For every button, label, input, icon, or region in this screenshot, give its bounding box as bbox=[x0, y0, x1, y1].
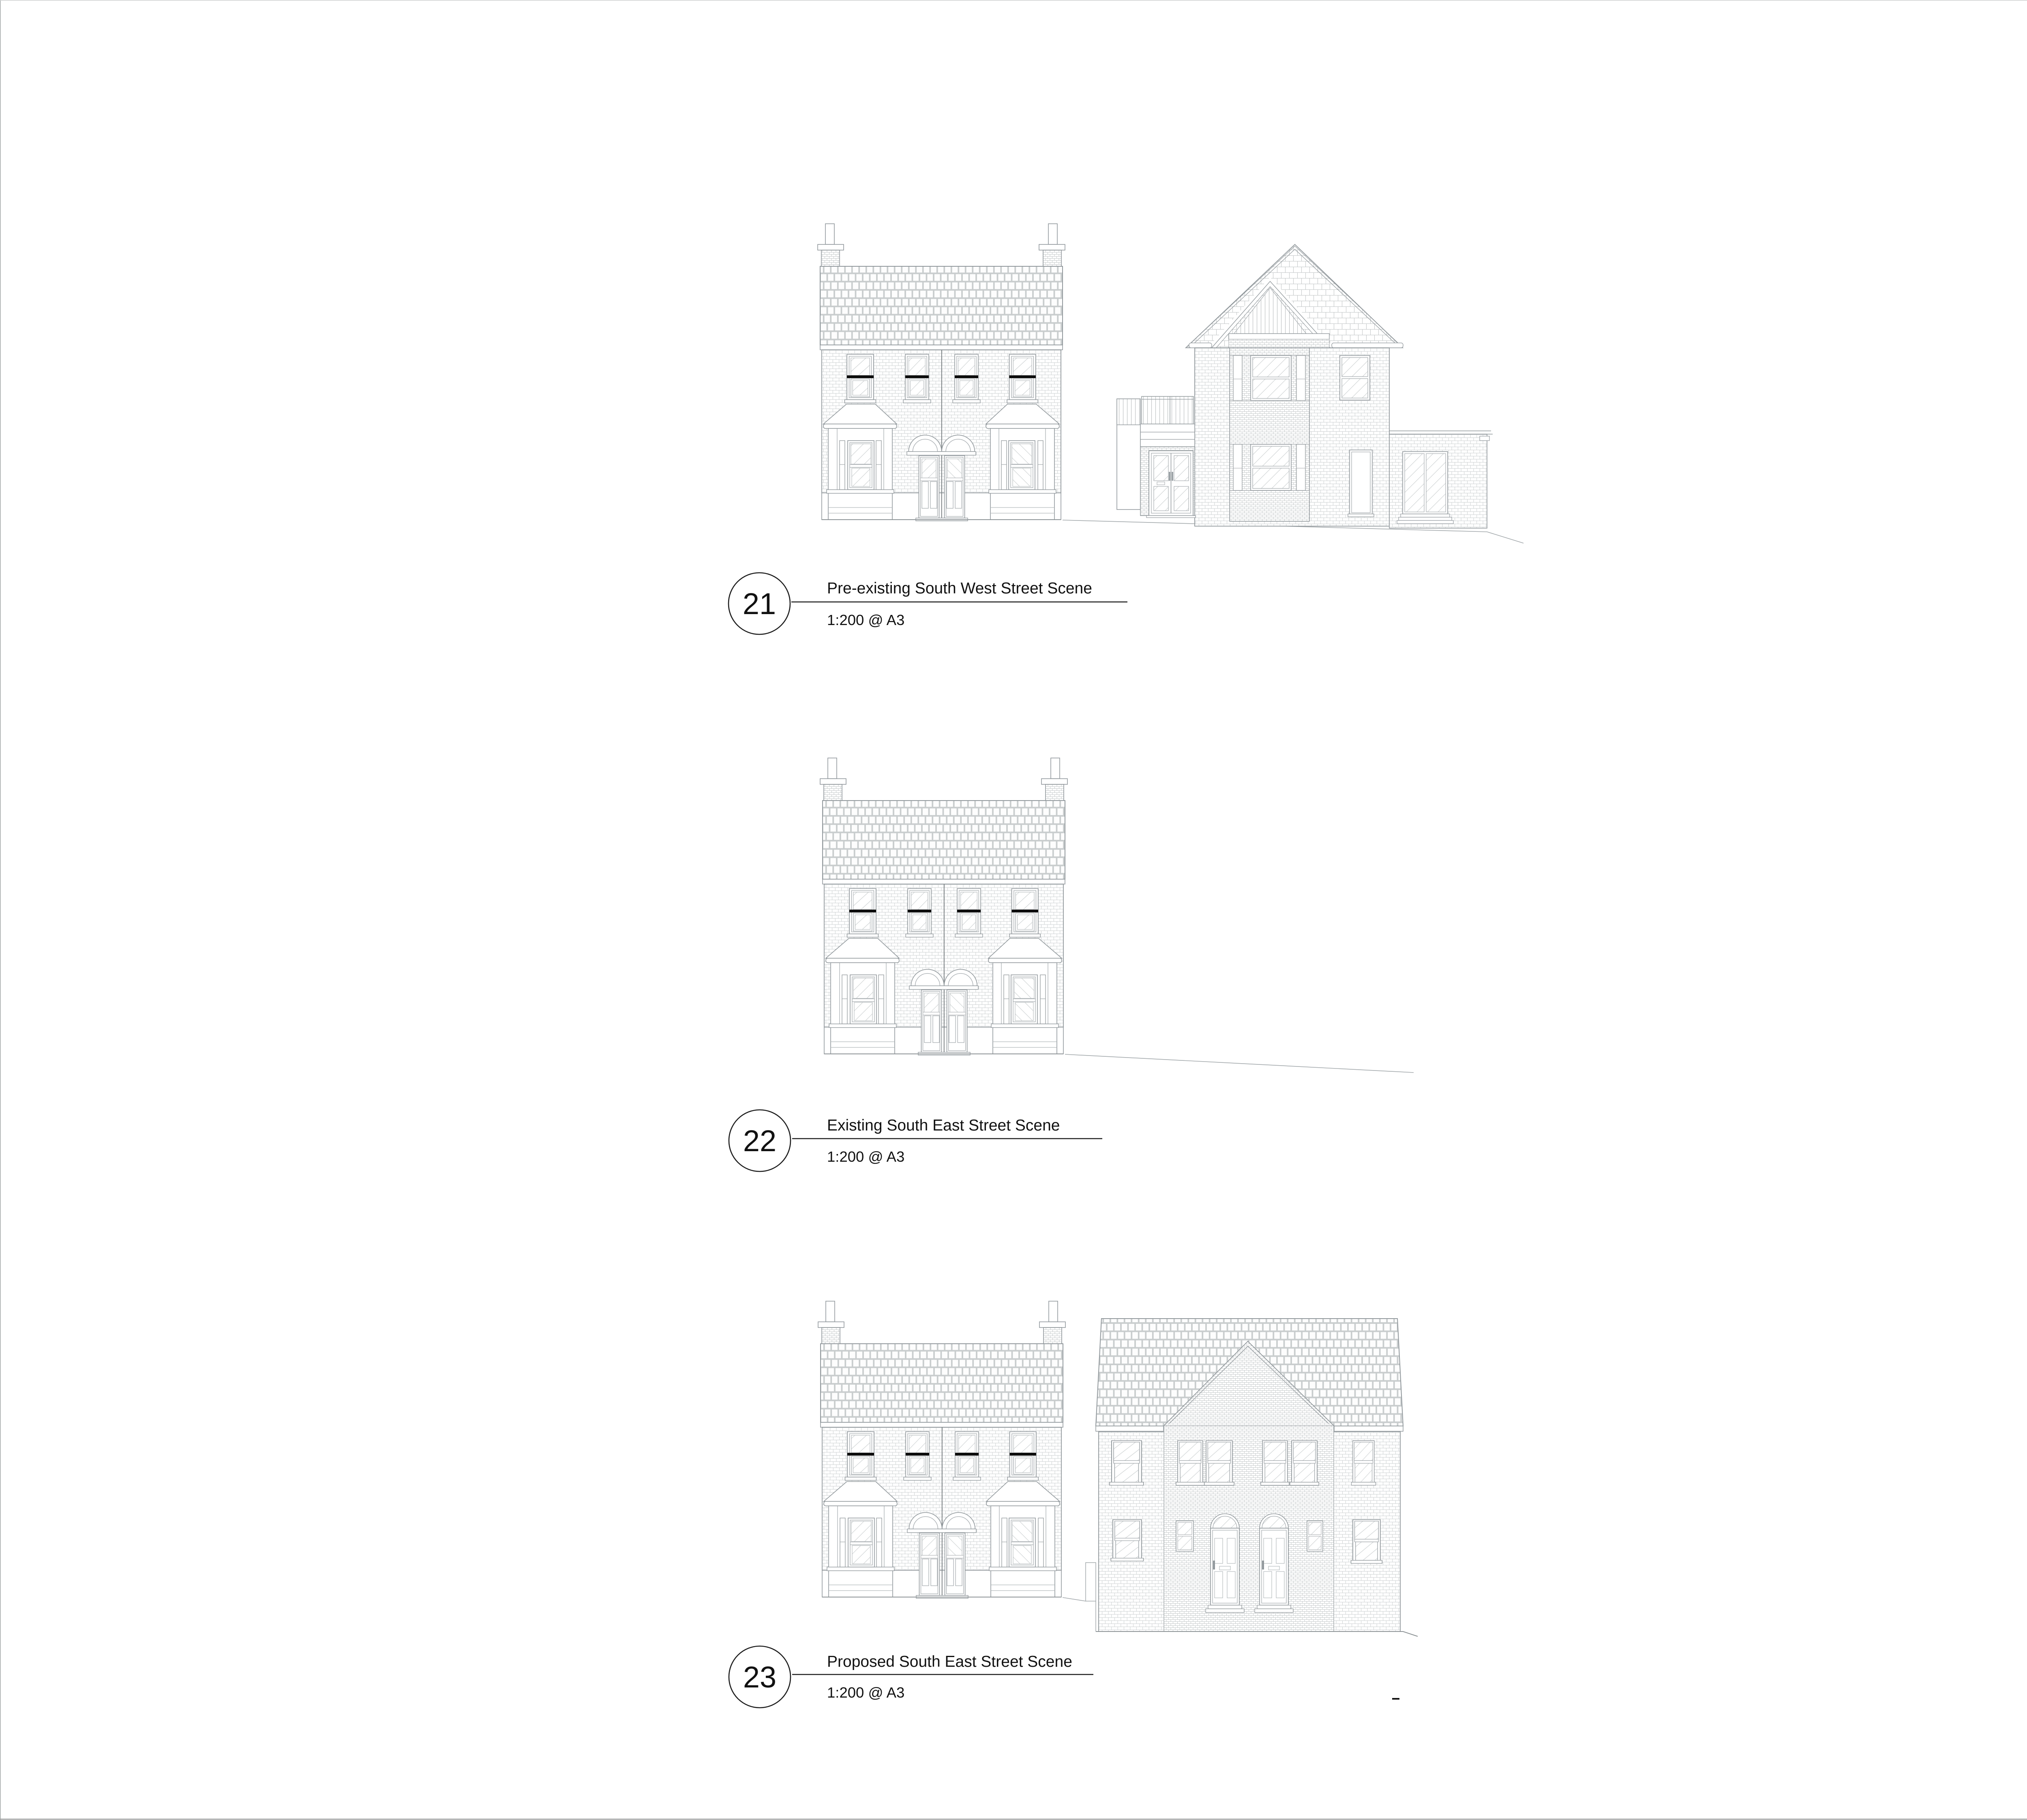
svg-text:1:200 @ A3: 1:200 @ A3 bbox=[827, 612, 904, 628]
svg-text:1:200 @ A3: 1:200 @ A3 bbox=[827, 1684, 904, 1701]
svg-text:1:200 @ A3: 1:200 @ A3 bbox=[827, 1148, 904, 1165]
svg-text:Existing South East Street Sce: Existing South East Street Scene bbox=[827, 1117, 1060, 1134]
svg-text:Pre-existing South West Street: Pre-existing South West Street Scene bbox=[827, 580, 1092, 597]
svg-text:21: 21 bbox=[743, 587, 776, 621]
svg-text:22: 22 bbox=[743, 1124, 776, 1158]
svg-text:23: 23 bbox=[743, 1660, 776, 1694]
svg-text:Proposed South East Street Sce: Proposed South East Street Scene bbox=[827, 1653, 1072, 1670]
